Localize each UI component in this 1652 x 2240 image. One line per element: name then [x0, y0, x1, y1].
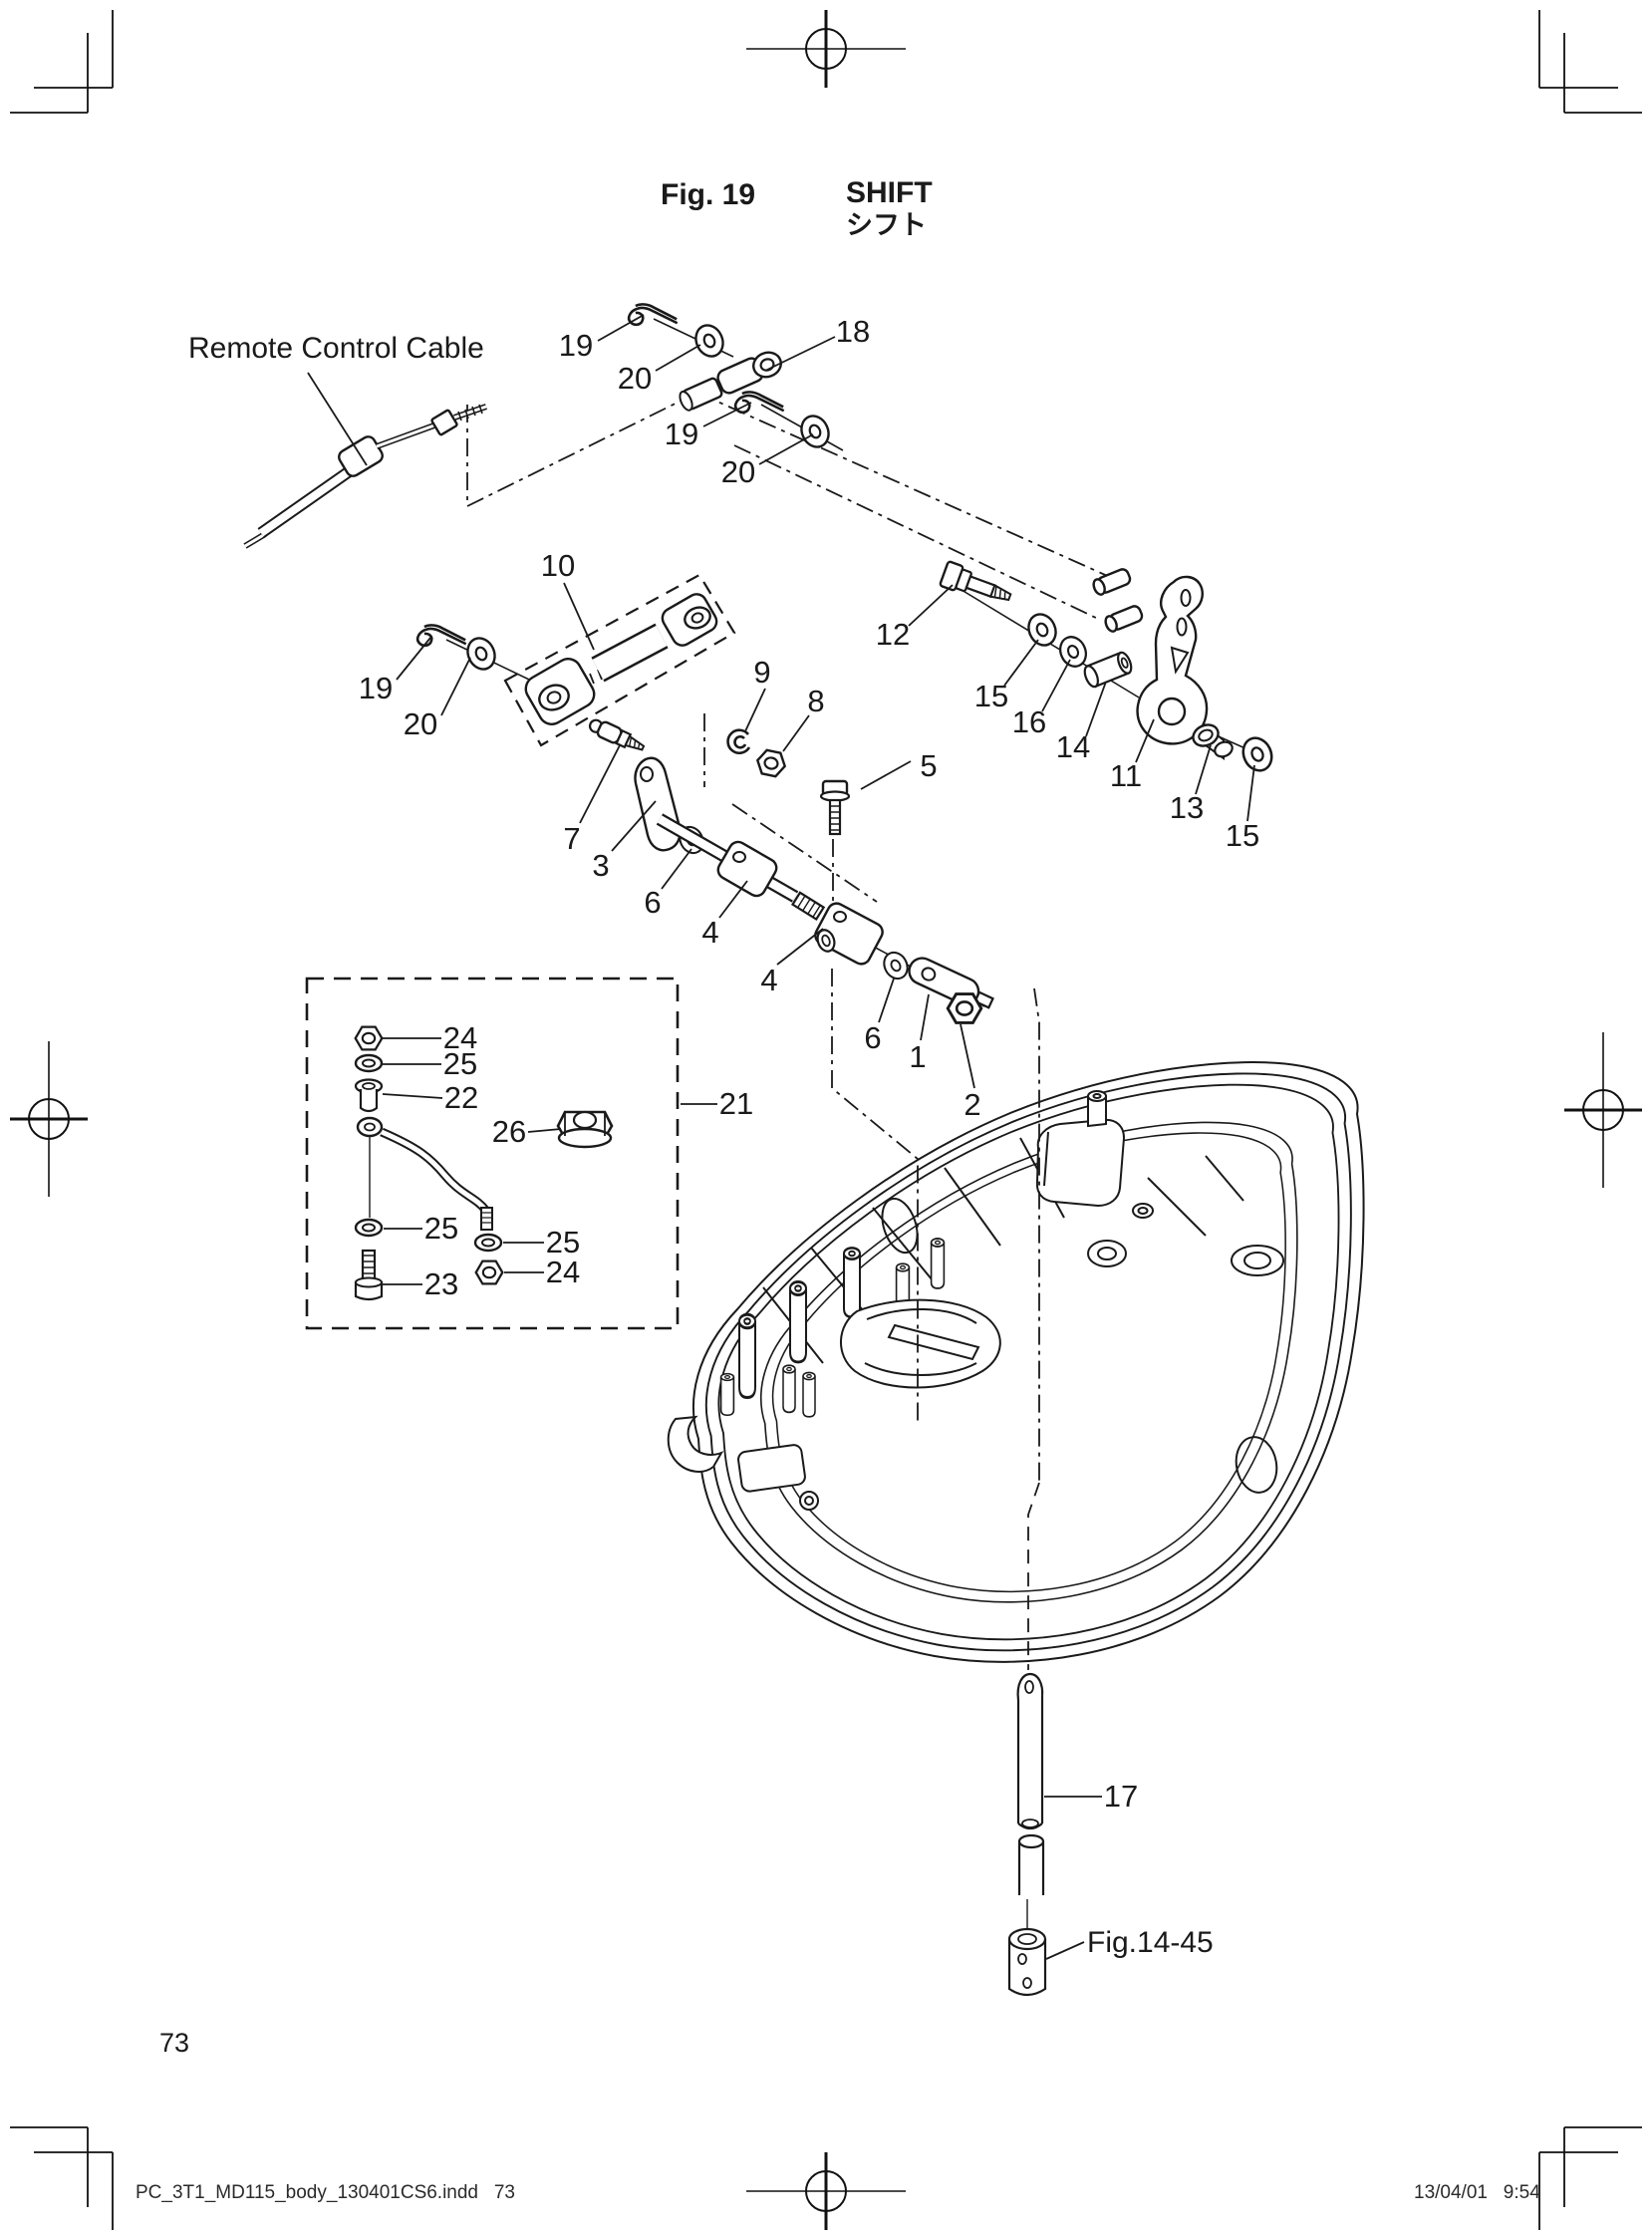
part-callout-4: 4	[701, 915, 718, 951]
part-callout-3: 3	[592, 848, 609, 884]
bottom-cowling-art	[669, 1062, 1364, 1662]
part-callout-10: 10	[541, 548, 575, 584]
footer-filename: PC_3T1_MD115_body_130401CS6.indd 73	[136, 2183, 515, 2204]
center-mark-bottom	[746, 2152, 906, 2230]
bolt-5-art	[821, 781, 849, 834]
page-title-japanese: シフト	[846, 211, 927, 240]
part-callout-15: 15	[1226, 818, 1259, 854]
eclip-9-art	[728, 730, 749, 753]
bolt-12-art	[940, 561, 1014, 609]
part-callout-14: 14	[1056, 729, 1090, 765]
part-callout-6: 6	[644, 885, 661, 921]
shift-block-art	[812, 900, 886, 967]
center-mark-left	[10, 1041, 88, 1197]
part-callout-12: 12	[876, 617, 910, 653]
part-callout-21: 21	[719, 1086, 753, 1122]
flange-nut-26-art	[558, 1112, 612, 1147]
part-callout-20: 20	[618, 361, 652, 397]
part-callout-11: 11	[1110, 758, 1142, 794]
figure-label: Fig. 19	[661, 179, 755, 211]
part-callout-15: 15	[974, 679, 1008, 714]
part-callout-7: 7	[563, 821, 580, 857]
part-callout-23: 23	[424, 1266, 458, 1302]
part-callout-2: 2	[964, 1087, 980, 1123]
page-number: 73	[159, 2029, 189, 2058]
spacer-14-art	[1082, 651, 1134, 689]
bolt-23-art	[356, 1251, 382, 1299]
part-callout-13: 13	[1170, 790, 1204, 826]
part-callout-17: 17	[1104, 1779, 1138, 1815]
part-callout-4: 4	[760, 963, 777, 998]
part-callout-19: 19	[559, 328, 593, 364]
part-callout-16: 16	[1012, 704, 1046, 740]
washer-art	[463, 321, 1277, 982]
part-callout-25: 25	[443, 1046, 477, 1082]
coupler-art	[1009, 1929, 1045, 1995]
nut-8-art	[755, 748, 787, 777]
part-callout-18: 18	[836, 314, 870, 350]
shift-lever-art	[1092, 568, 1208, 744]
part-callout-6: 6	[864, 1020, 881, 1056]
part-callout-5: 5	[920, 748, 937, 784]
shift-rod-17-art	[1009, 1674, 1045, 1995]
part-callout-1: 1	[909, 1039, 926, 1075]
link-10-art	[521, 591, 720, 729]
center-mark-right	[1564, 1032, 1642, 1188]
part-callout-22: 22	[444, 1080, 478, 1116]
drop-line-dashed	[1028, 1483, 1039, 1670]
center-mark-top	[746, 10, 906, 88]
part-callout-26: 26	[492, 1114, 526, 1150]
part-callout-20: 20	[721, 454, 755, 490]
part-callout-24: 24	[546, 1255, 580, 1290]
part-callout-25: 25	[424, 1211, 458, 1247]
catalog-page: Fig. 19 SHIFT シフト Remote Control Cable F…	[0, 0, 1652, 2240]
figure-reference-label: Fig.14-45	[1087, 1927, 1214, 1959]
bracket-3-art	[635, 758, 680, 850]
page-title: SHIFT	[846, 177, 933, 209]
remote-control-cable-label: Remote Control Cable	[188, 333, 484, 365]
part-callout-20: 20	[404, 706, 437, 742]
nut-2-art	[948, 994, 981, 1023]
part-callout-8: 8	[807, 684, 824, 719]
part-callout-19: 19	[665, 417, 698, 452]
part-callout-9: 9	[753, 655, 770, 691]
part-callout-19: 19	[359, 671, 393, 706]
shift-shaft-art	[660, 819, 824, 920]
remote-control-cable-art	[245, 405, 486, 546]
footer-timestamp: 13/04/01 9:54	[1414, 2183, 1540, 2204]
